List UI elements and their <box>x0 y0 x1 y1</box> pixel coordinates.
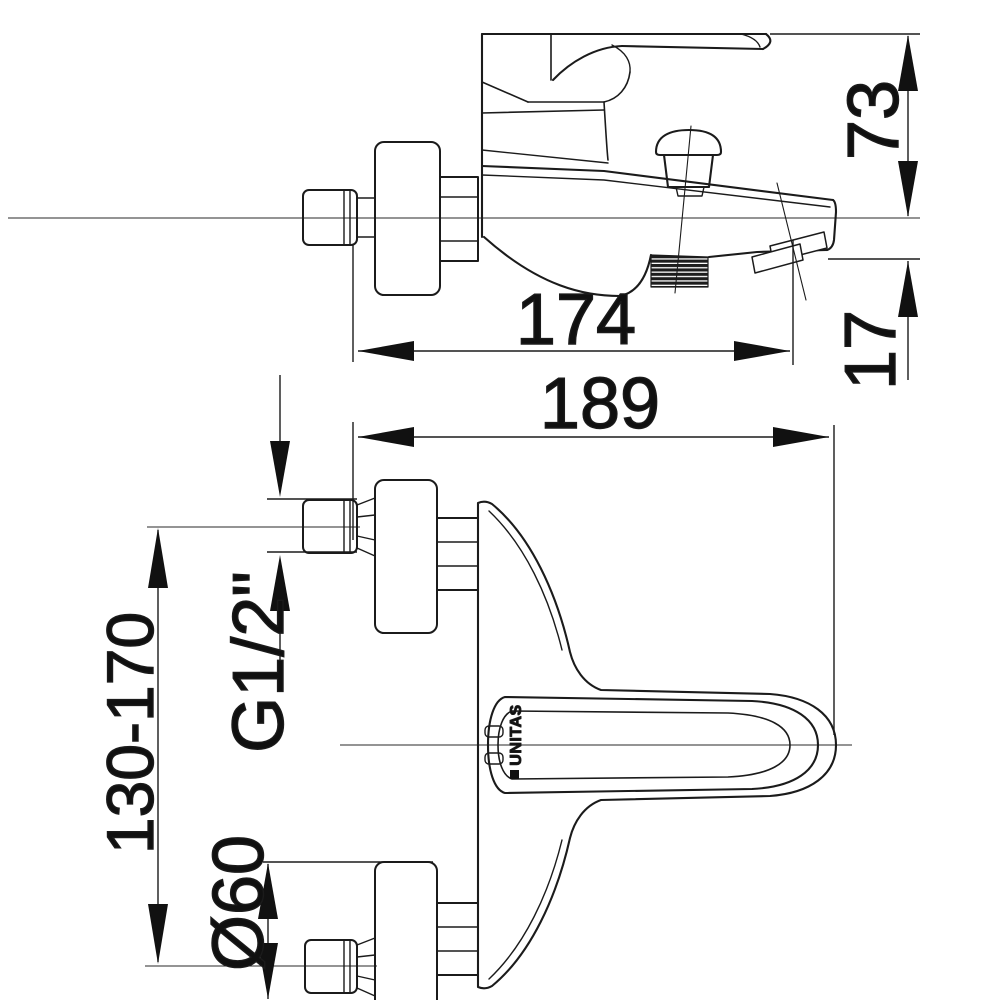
top-escutcheon-flange <box>375 480 437 633</box>
bottom-escutcheon-flange <box>375 862 437 1000</box>
dim-189: 189 <box>353 364 834 735</box>
arrow-right-icon <box>734 341 790 361</box>
dim-range-label: 130-170 <box>93 612 167 854</box>
dim-diameter-60: Ø60 <box>199 835 433 999</box>
arrow-down-icon <box>270 441 290 497</box>
arrow-down-icon <box>898 161 918 217</box>
arrow-up-icon <box>148 528 168 588</box>
upper-view-side-elevation <box>303 34 836 300</box>
hex-nut-side <box>440 177 478 261</box>
dim-174-label: 174 <box>516 280 636 360</box>
bottom-hex-nut <box>437 903 478 975</box>
brand-mark: UNITAS <box>508 704 525 779</box>
faucet-body-side <box>482 34 836 300</box>
shower-outlet-thread <box>651 255 708 287</box>
brand-logo-icon <box>510 770 519 779</box>
dim-189-label: 189 <box>540 364 660 444</box>
dim-73: 73 <box>770 34 920 217</box>
lever-underside <box>622 46 763 49</box>
lever-tip <box>763 34 770 49</box>
dim-174: 174 <box>353 240 793 365</box>
dim-17: 17 <box>828 259 920 390</box>
dim-73-label: 73 <box>834 80 914 160</box>
bath-mixer-technical-drawing: UNITAS 73 17 174 <box>0 0 1000 1000</box>
dim-g12: G1/2" <box>219 375 357 753</box>
arrow-down-icon <box>148 904 168 964</box>
brand-label: UNITAS <box>508 704 525 765</box>
lever-neck-curve <box>553 46 622 80</box>
arrow-left-icon <box>358 341 414 361</box>
dim-130-170: 130-170 <box>93 528 168 964</box>
arrow-up-icon <box>898 261 918 317</box>
technical-drawing-page: UNITAS 73 17 174 <box>0 0 1000 1000</box>
arrow-left-icon <box>358 427 414 447</box>
bottom-fitting-plan <box>305 862 478 1000</box>
dim-diameter-label: Ø60 <box>199 835 279 971</box>
top-fitting-plan <box>303 480 478 633</box>
dim-17-label: 17 <box>831 310 911 390</box>
lower-view-plan: UNITAS <box>303 480 836 1000</box>
dim-thread-label: G1/2" <box>219 571 299 753</box>
arrow-right-icon <box>773 427 829 447</box>
top-hex-nut <box>437 518 478 590</box>
